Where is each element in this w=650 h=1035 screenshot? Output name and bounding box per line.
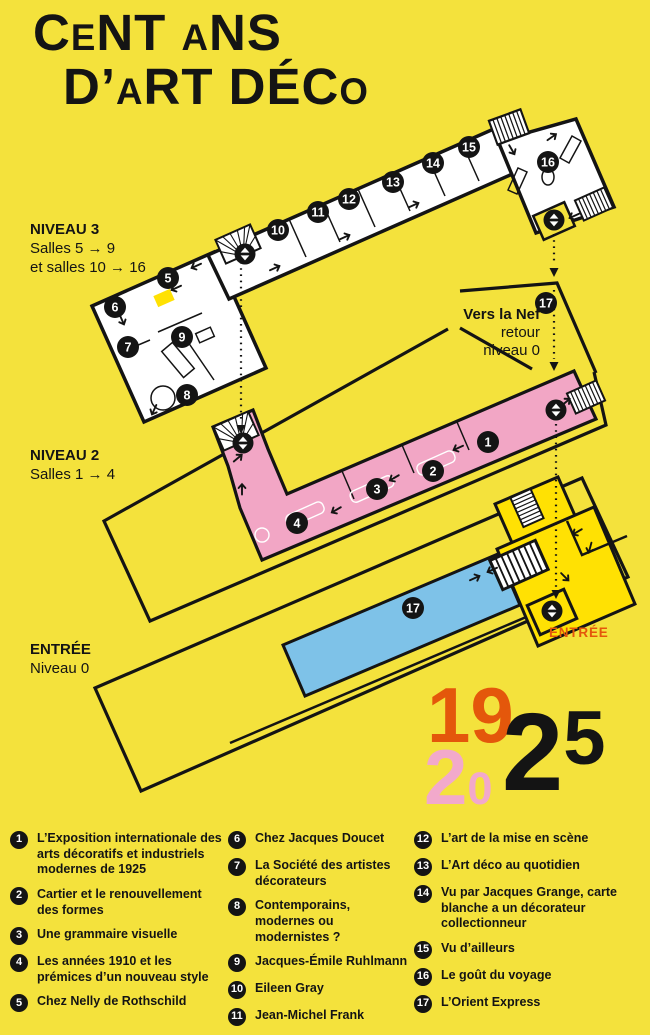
svg-text:9: 9 xyxy=(179,331,186,345)
level-label-niveau0: ENTRÉE Niveau 0 xyxy=(30,641,91,679)
legend-item: 11Jean-Michel Frank xyxy=(228,1008,414,1026)
svg-text:8: 8 xyxy=(184,389,191,403)
legend-number-badge: 13 xyxy=(414,858,432,876)
legend-number-badge: 17 xyxy=(414,995,432,1013)
svg-text:14: 14 xyxy=(426,157,440,171)
legend-number-badge: 12 xyxy=(414,831,432,849)
room-badge-14: 14 xyxy=(422,152,444,174)
legend-label: Une grammaire visuelle xyxy=(37,927,181,945)
elevator-icon xyxy=(542,601,563,622)
legend-number-badge: 6 xyxy=(228,831,246,849)
svg-text:2: 2 xyxy=(430,465,437,479)
legend-label: Cartier et le renouvellement des formes xyxy=(37,887,228,918)
room-badge-3: 3 xyxy=(366,478,388,500)
legend-item: 4Les années 1910 et les prémices d’un no… xyxy=(10,954,228,985)
legend-label: Contemporains, modernes ou modernistes ? xyxy=(255,898,414,945)
level-label-niveau2: NIVEAU 2 Salles 1 → 4 xyxy=(30,447,115,485)
legend-item: 13L’Art déco au quotidien xyxy=(414,858,650,876)
legend-item: 8Contemporains, modernes ou modernistes … xyxy=(228,898,414,945)
room-badge-11: 11 xyxy=(307,201,329,223)
legend-label: L’Art déco au quotidien xyxy=(441,858,584,876)
svg-text:3: 3 xyxy=(374,483,381,497)
legend-label: L’Exposition internationale des arts déc… xyxy=(37,831,228,878)
year-25: 25 xyxy=(502,698,605,808)
room-badge-5: 5 xyxy=(157,267,179,289)
legend-column-3: 12L’art de la mise en scène 13L’Art déco… xyxy=(414,831,650,1035)
legend-label: Chez Jacques Doucet xyxy=(255,831,388,849)
legend-item: 17L’Orient Express xyxy=(414,995,650,1013)
title-line-1: CENT ANS xyxy=(33,6,369,60)
legend-item: 1L’Exposition internationale des arts dé… xyxy=(10,831,228,878)
nef-note: Vers la Nef retour niveau 0 xyxy=(395,306,540,360)
legend-number-badge: 4 xyxy=(10,954,28,972)
legend-number-badge: 2 xyxy=(10,887,28,905)
legend-number-badge: 3 xyxy=(10,927,28,945)
legend-item: 5Chez Nelly de Rothschild xyxy=(10,994,228,1012)
legend-item: 3Une grammaire visuelle xyxy=(10,927,228,945)
svg-text:16: 16 xyxy=(541,156,555,170)
legend-number-badge: 10 xyxy=(228,981,246,999)
entrance-label: ENTRÉE xyxy=(549,625,609,640)
svg-text:4: 4 xyxy=(294,517,301,531)
svg-text:13: 13 xyxy=(386,176,400,190)
legend-label: L’art de la mise en scène xyxy=(441,831,592,849)
svg-text:5: 5 xyxy=(165,272,172,286)
svg-text:10: 10 xyxy=(271,224,285,238)
legend-label: Le goût du voyage xyxy=(441,968,555,986)
room-badge-6: 6 xyxy=(104,296,126,318)
legend-column-1: 1L’Exposition internationale des arts dé… xyxy=(10,831,228,1035)
legend-number-badge: 16 xyxy=(414,968,432,986)
svg-text:17: 17 xyxy=(539,297,553,311)
svg-text:7: 7 xyxy=(125,341,132,355)
svg-text:17: 17 xyxy=(406,602,420,616)
room-badge-13: 13 xyxy=(382,171,404,193)
legend-item: 15Vu d’ailleurs xyxy=(414,941,650,959)
legend-label: L’Orient Express xyxy=(441,995,544,1013)
level-label-niveau3: NIVEAU 3 Salles 5 → 9 et salles 10 → 16 xyxy=(30,221,146,277)
legend-label: Jean-Michel Frank xyxy=(255,1008,368,1026)
legend: 1L’Exposition internationale des arts dé… xyxy=(10,831,650,1035)
legend-item: 6Chez Jacques Doucet xyxy=(228,831,414,849)
room-badge-7: 7 xyxy=(117,336,139,358)
legend-item: 9Jacques-Émile Ruhlmann xyxy=(228,954,414,972)
niveau3-plan xyxy=(92,109,614,422)
svg-text:1: 1 xyxy=(485,436,492,450)
legend-number-badge: 1 xyxy=(10,831,28,849)
legend-item: 10Eileen Gray xyxy=(228,981,414,999)
year-20: 20 xyxy=(424,738,493,816)
room-badge-15: 15 xyxy=(458,136,480,158)
legend-item: 16Le goût du voyage xyxy=(414,968,650,986)
room-badge-1: 1 xyxy=(477,431,499,453)
room-badge-4: 4 xyxy=(286,512,308,534)
legend-label: Vu d’ailleurs xyxy=(441,941,519,959)
legend-item: 2Cartier et le renouvellement des formes xyxy=(10,887,228,918)
room-badge-12: 12 xyxy=(338,188,360,210)
legend-label: Vu par Jacques Grange, carte blanche a u… xyxy=(441,885,650,932)
room-badge-10: 10 xyxy=(267,219,289,241)
legend-column-2: 6Chez Jacques Doucet 7La Société des art… xyxy=(228,831,414,1035)
legend-label: Les années 1910 et les prémices d’un nou… xyxy=(37,954,228,985)
legend-label: Chez Nelly de Rothschild xyxy=(37,994,190,1012)
room-badge-2: 2 xyxy=(422,460,444,482)
room-badge-17: 17 xyxy=(402,597,424,619)
legend-label: La Société des artistes décorateurs xyxy=(255,858,414,889)
legend-number-badge: 15 xyxy=(414,941,432,959)
legend-number-badge: 7 xyxy=(228,858,246,876)
legend-label: Eileen Gray xyxy=(255,981,328,999)
legend-number-badge: 14 xyxy=(414,885,432,903)
room-badge-8: 8 xyxy=(176,384,198,406)
svg-text:15: 15 xyxy=(462,141,476,155)
legend-item: 14Vu par Jacques Grange, carte blanche a… xyxy=(414,885,650,932)
room-badge-9: 9 xyxy=(171,326,193,348)
legend-item: 7La Société des artistes décorateurs xyxy=(228,858,414,889)
legend-item: 12L’art de la mise en scène xyxy=(414,831,650,849)
legend-number-badge: 5 xyxy=(10,994,28,1012)
svg-text:12: 12 xyxy=(342,193,356,207)
legend-number-badge: 9 xyxy=(228,954,246,972)
room-badge-16: 16 xyxy=(537,151,559,173)
legend-number-badge: 8 xyxy=(228,898,246,916)
title-line-2: D’ART DÉCO xyxy=(63,60,369,114)
legend-label: Jacques-Émile Ruhlmann xyxy=(255,954,411,972)
legend-number-badge: 11 xyxy=(228,1008,246,1026)
poster-title: CENT ANS D’ART DÉCO xyxy=(33,6,369,113)
svg-text:11: 11 xyxy=(311,206,324,220)
svg-text:6: 6 xyxy=(112,301,119,315)
